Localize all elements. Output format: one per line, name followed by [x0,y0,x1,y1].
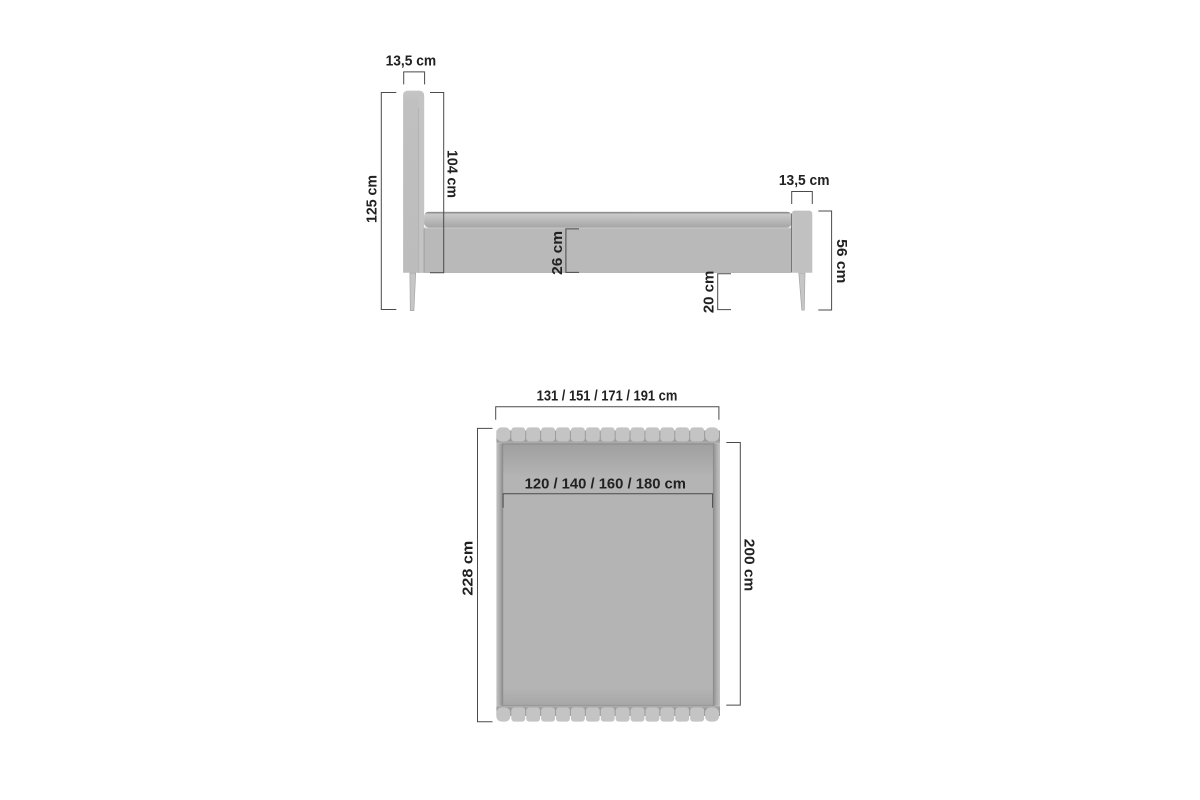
svg-text:120 / 140 / 160 / 180 cm: 120 / 140 / 160 / 180 cm [525,476,686,493]
svg-text:125 cm: 125 cm [364,175,381,223]
svg-text:56 cm: 56 cm [833,239,850,283]
svg-text:200 cm: 200 cm [741,539,758,592]
svg-text:13,5 cm: 13,5 cm [386,52,437,69]
svg-text:13,5 cm: 13,5 cm [779,172,830,189]
svg-text:104 cm: 104 cm [443,150,460,198]
svg-text:131 / 151 / 171 / 191 cm: 131 / 151 / 171 / 191 cm [537,387,678,404]
svg-text:26 cm: 26 cm [549,231,566,275]
svg-text:20 cm: 20 cm [701,271,718,314]
svg-text:228 cm: 228 cm [459,541,476,596]
